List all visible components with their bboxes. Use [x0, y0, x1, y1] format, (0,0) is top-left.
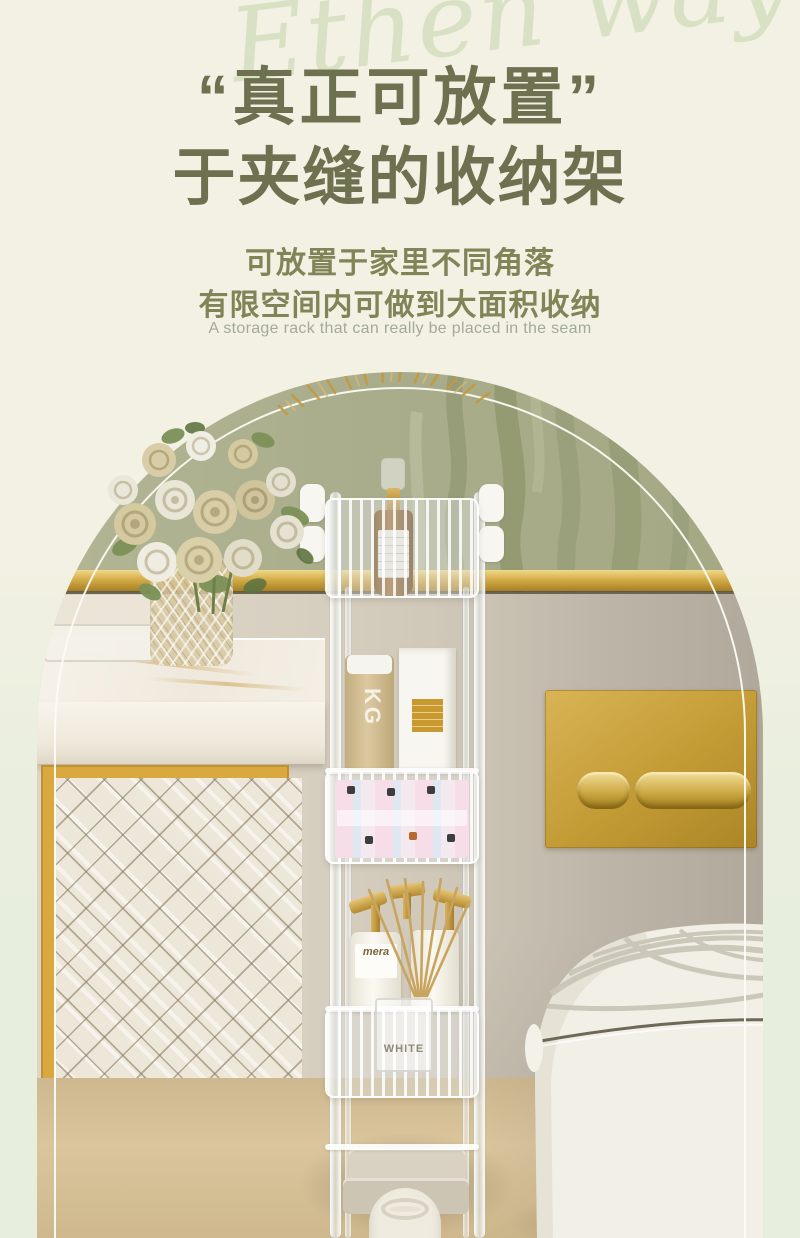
quilted-tile-pattern	[54, 778, 302, 1098]
flower-bouquet	[95, 406, 323, 624]
promo-poster: Ethen way “真正可放置” 于夹缝的收纳架 可放置于家里不同角落 有限空…	[0, 0, 800, 1238]
folded-towel	[349, 1148, 465, 1180]
headline-line1: “真正可放置”	[0, 58, 800, 138]
gold-flush-plate	[545, 690, 757, 848]
counter-front-edge	[37, 702, 325, 764]
wipes-cartoon-pattern	[347, 786, 355, 794]
english-caption: A storage rack that can really be placed…	[0, 320, 800, 338]
quilted-cabinet-panel-gold-frame	[41, 765, 289, 1085]
rack-pole-right	[474, 492, 485, 1238]
rack-basket-top	[325, 498, 479, 598]
basket-ribs	[327, 500, 477, 596]
sink-tray	[43, 624, 155, 662]
diffuser-glass-bottle: WHITE	[375, 998, 433, 1072]
reed-diffuser-sticks	[363, 878, 479, 1004]
toilet	[495, 910, 763, 1238]
spray-bottle-cap	[381, 458, 405, 490]
cosmetic-box-gold-label	[412, 699, 443, 732]
toner-bottle-label: KG	[355, 688, 385, 764]
rolled-towel-spiral	[377, 1194, 433, 1224]
toner-bottle-cap	[347, 655, 392, 674]
flush-button-large	[635, 772, 751, 809]
flush-button-small	[577, 772, 630, 809]
subtitle-line1: 可放置于家里不同角落	[0, 243, 800, 285]
wipes-package-band	[337, 810, 467, 826]
rack-side-clip	[479, 484, 504, 522]
rack-pole-left	[330, 492, 341, 1238]
rack-side-clip	[479, 526, 504, 562]
rack-bottom-rim	[325, 1144, 479, 1150]
headline-line2: 于夹缝的收纳架	[0, 138, 800, 218]
